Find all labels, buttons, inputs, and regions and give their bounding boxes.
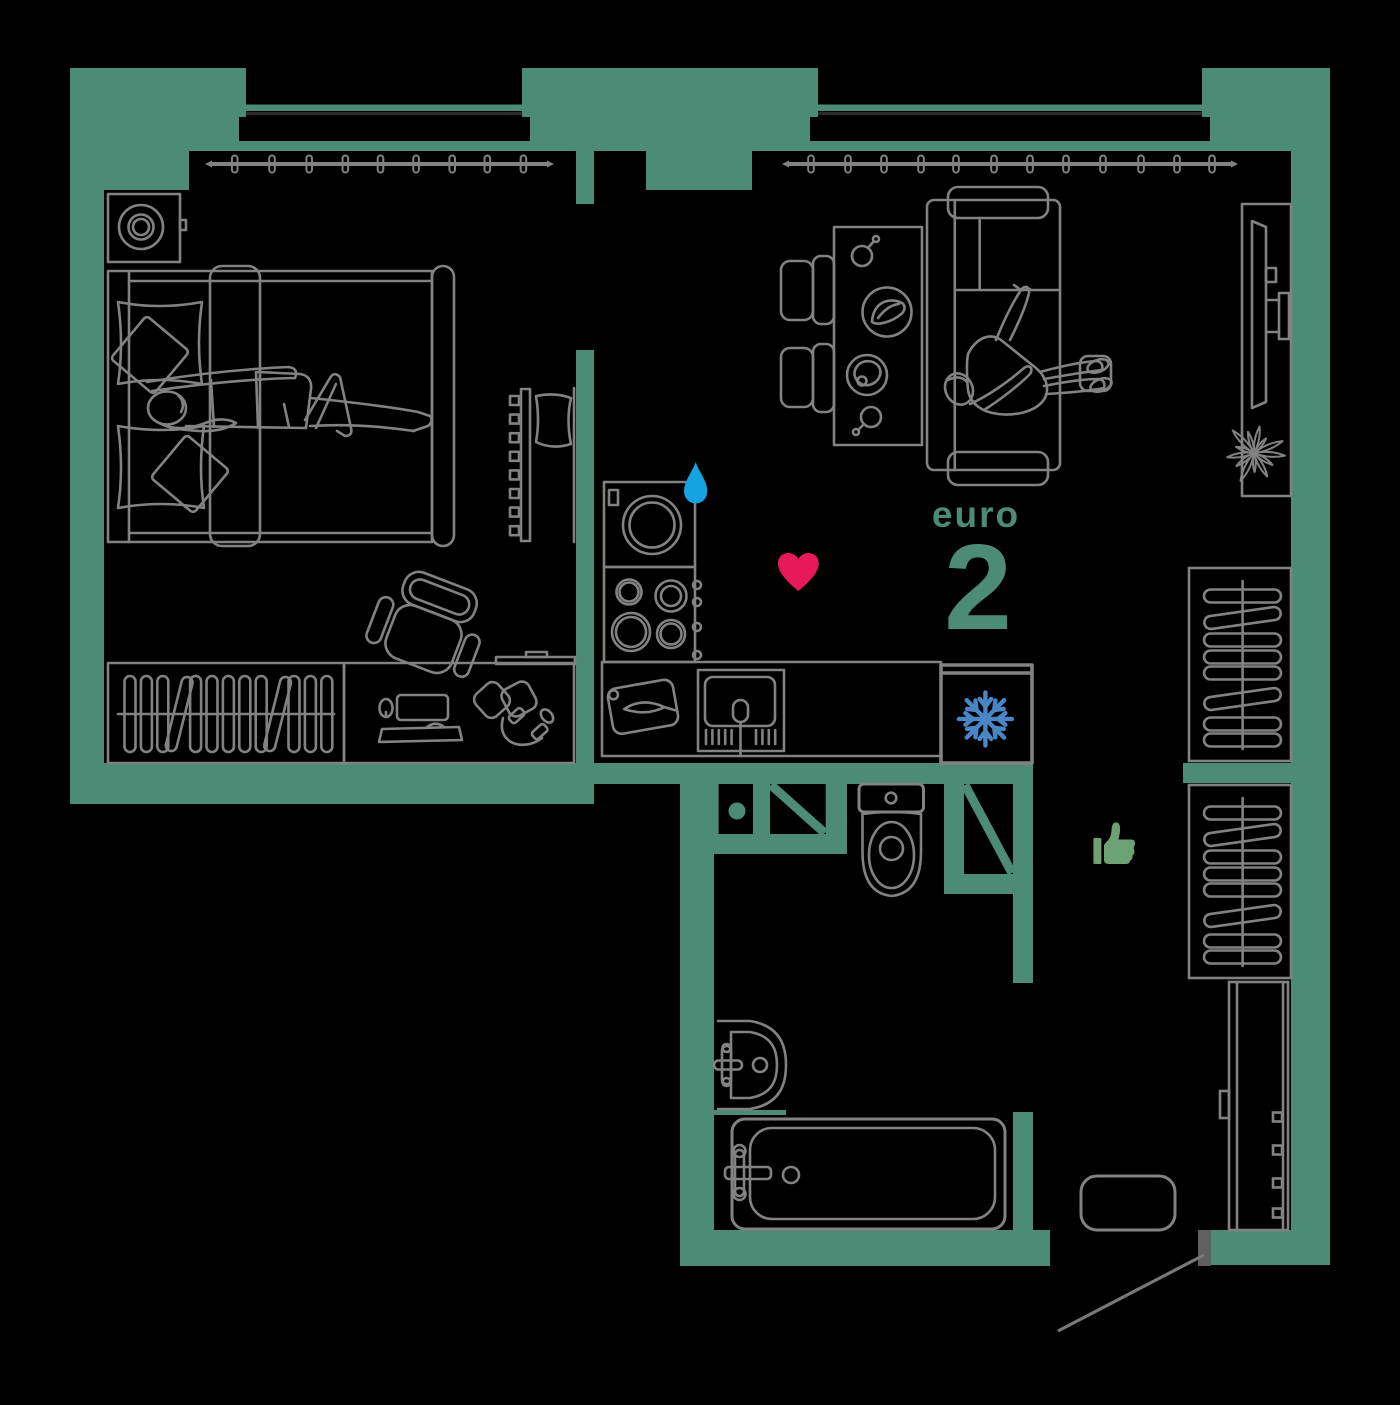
svg-text:2: 2 bbox=[944, 519, 1012, 655]
